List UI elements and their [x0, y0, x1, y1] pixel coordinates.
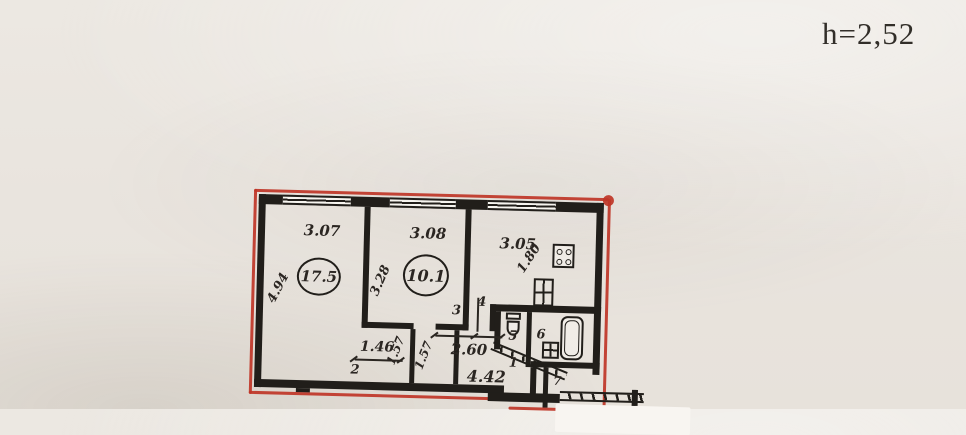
room-area-mid-value: 10.1: [406, 265, 445, 285]
room-area-left-value: 17.5: [300, 267, 337, 286]
dim-line-hall: [435, 335, 502, 339]
wall-right: [592, 203, 604, 375]
dim-hall-width: 2.60: [439, 340, 499, 360]
stove-icon: [552, 244, 575, 269]
window-icon: [390, 197, 456, 209]
dim-room-mid-width: 3.08: [398, 224, 458, 244]
wall-midroom-bottom-a: [362, 322, 414, 329]
washbasin-icon: [542, 341, 559, 358]
room-number-bath: 6: [536, 327, 545, 342]
room-number-living: 2: [350, 362, 359, 377]
room-area-left: 17.5: [296, 257, 341, 296]
room-number-wc: 5: [508, 329, 517, 344]
entry-threshold-hatch: [560, 391, 644, 403]
bathtub-icon: [560, 316, 584, 361]
window-icon: [488, 200, 556, 212]
room-number-corridor-a: 3: [452, 303, 461, 318]
toilet-cistern-icon: [506, 313, 521, 320]
red-outline-right: [602, 199, 611, 413]
wall-room-divider-left: [362, 207, 371, 328]
wall-room-divider-right: [462, 209, 471, 330]
kitchen-sink-icon: [533, 278, 554, 307]
floor-plan: 3.07 3.08 3.05 17.5 10.1 4.94 3.28 1.80 …: [253, 194, 604, 418]
red-pen-blob: [603, 195, 614, 206]
dim-room-left-width: 3.07: [292, 221, 352, 241]
room-number-closet: 7: [553, 374, 562, 388]
wall-bottom-nub: [296, 388, 310, 392]
scanned-floor-plan-photo: h=2,52: [0, 0, 966, 409]
room-number-hall: 1: [508, 356, 517, 371]
wall-entry-solid: [488, 392, 560, 403]
wall-midroom-bottom-b: [436, 324, 469, 331]
window-icon: [283, 195, 351, 207]
room-area-mid: 10.1: [402, 254, 449, 297]
dim-mid-room-depth: 3.28: [367, 263, 393, 298]
room-number-corridor-b: 4: [477, 295, 486, 310]
ceiling-height-note: h=2,52: [822, 16, 962, 52]
dim-left-room-depth: 4.94: [264, 271, 292, 306]
